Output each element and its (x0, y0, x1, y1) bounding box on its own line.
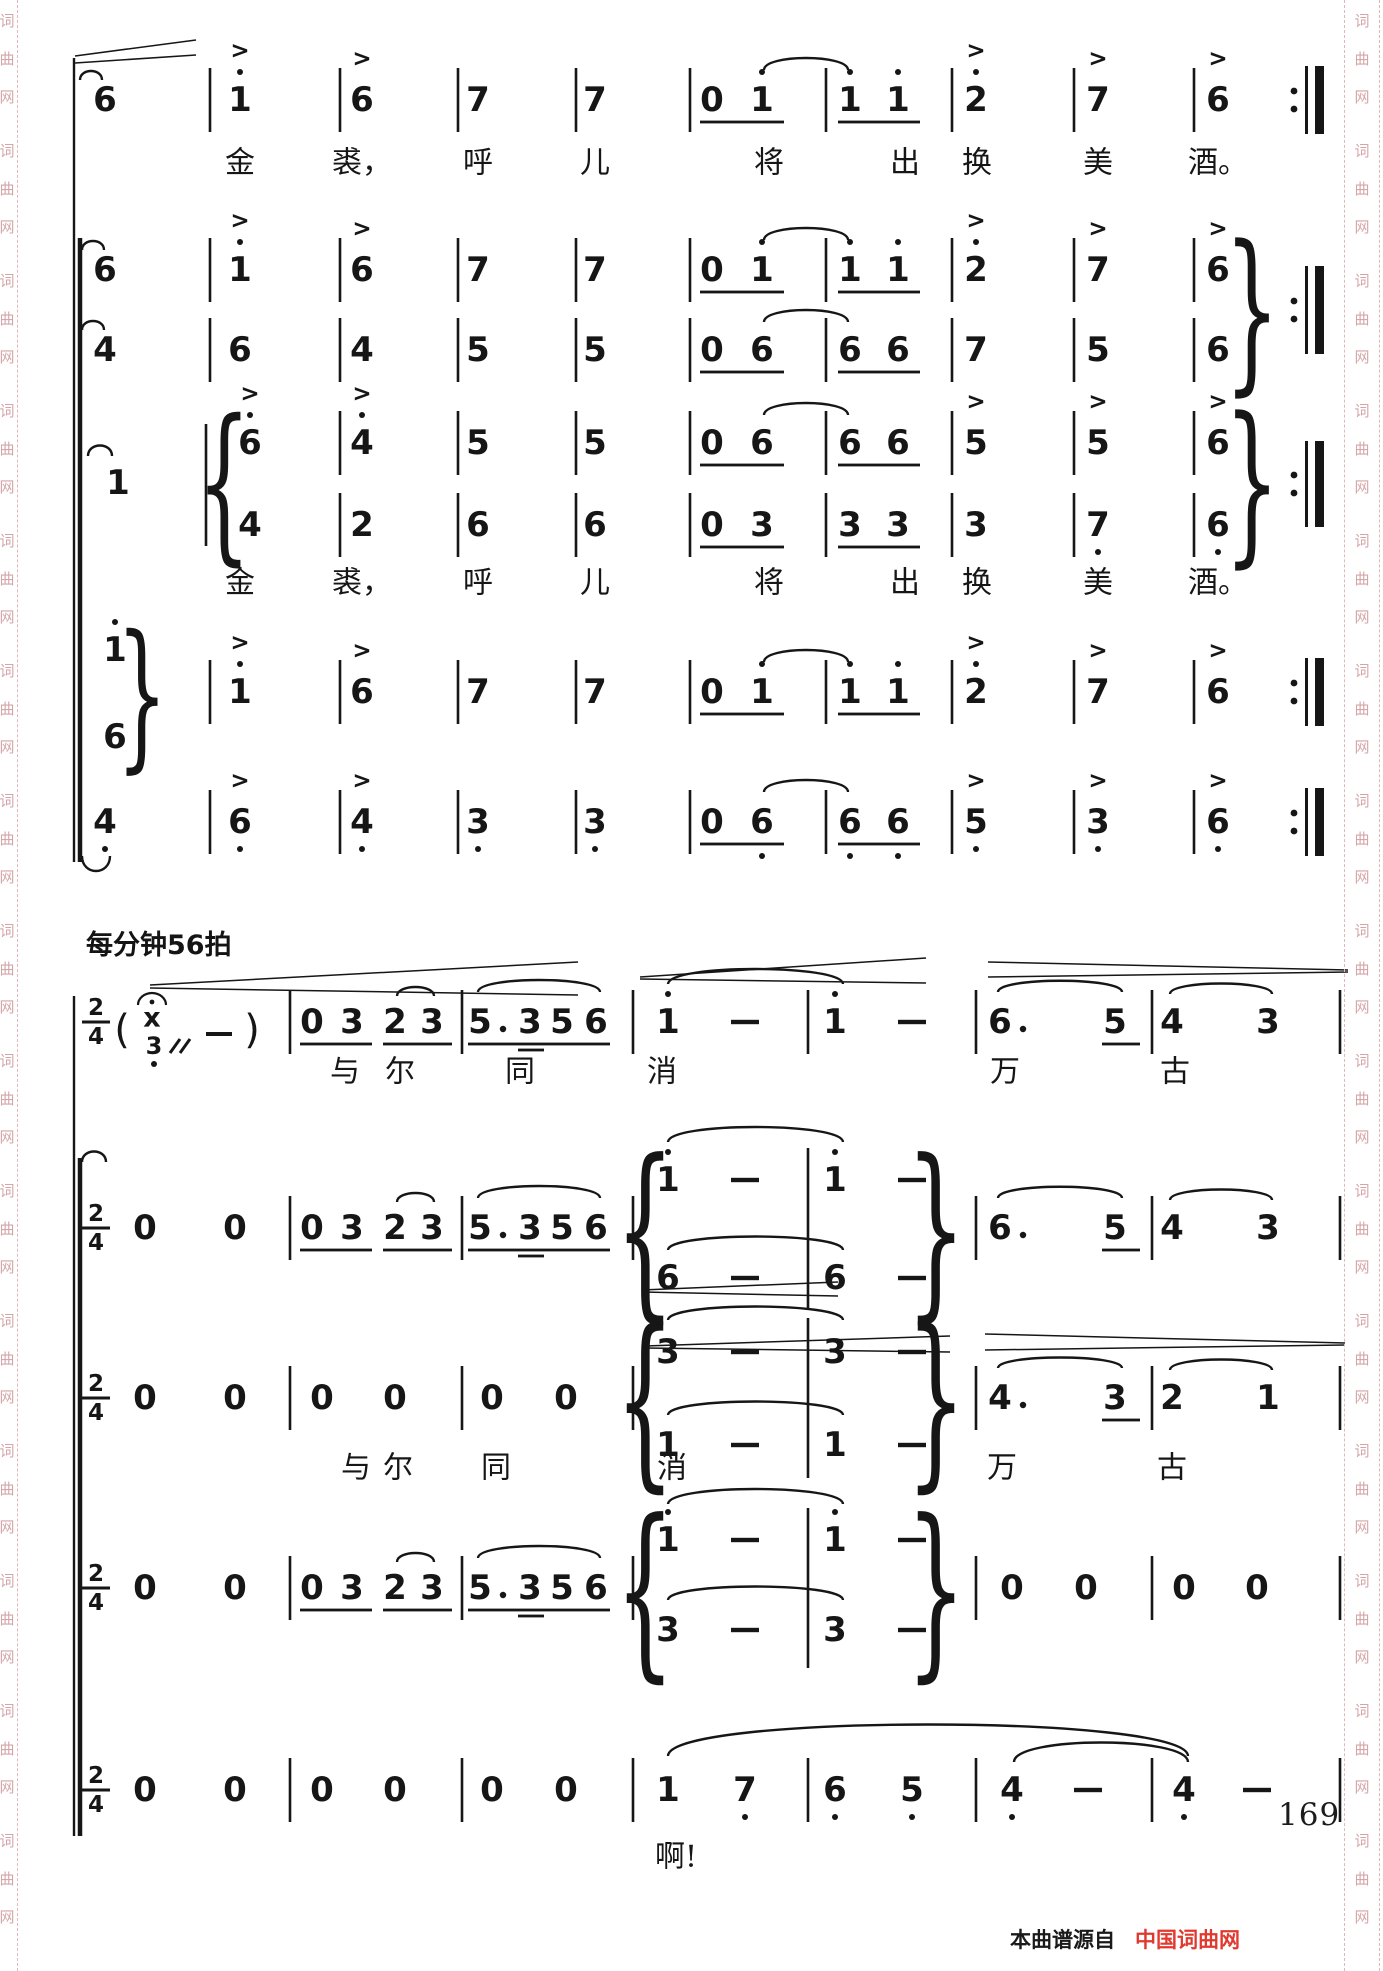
barline (575, 493, 578, 557)
duration-dash (731, 1276, 759, 1280)
repeat-dot (1291, 490, 1298, 497)
barline (1193, 68, 1196, 132)
note-digit: 0 (1172, 1568, 1196, 1608)
hairpin-line (75, 40, 196, 56)
note-digit: 0 (480, 1378, 504, 1418)
octave-dot-low (151, 1061, 157, 1067)
watermark-char: 曲 (0, 52, 17, 67)
note-digit: 4 (350, 802, 374, 842)
note-digit: 6 (350, 80, 374, 120)
barline (73, 996, 75, 1836)
note-digit: 3 (1256, 1208, 1280, 1248)
hairpin-line (988, 972, 1348, 977)
barline (807, 1758, 810, 1822)
note-digit: 0 (133, 1770, 157, 1810)
barline (1193, 318, 1196, 382)
augmentation-dot (500, 1232, 506, 1238)
lyric: 酒。 (1188, 146, 1248, 181)
lyric: 酒。 (1188, 566, 1248, 601)
beam-underline (838, 843, 920, 846)
lyric: 与 (341, 1451, 371, 1486)
note-digit: 0 (1074, 1568, 1098, 1608)
watermark-char: 曲 (1352, 702, 1372, 717)
beam-underline (468, 1249, 610, 1252)
barline (339, 493, 342, 557)
watermark-char: 网 (1352, 1520, 1372, 1535)
watermark-char: 曲 (1352, 1612, 1372, 1627)
lyric: 同 (505, 1055, 535, 1090)
note-digit: 6 (466, 505, 490, 545)
duration-dash (731, 1443, 759, 1447)
tie-slur (764, 403, 848, 415)
barline (1073, 660, 1076, 724)
note-digit: 1 (228, 80, 252, 120)
tremolo-slash (180, 1039, 190, 1053)
duration-dash (206, 1032, 232, 1036)
tie-slur (82, 321, 104, 330)
repeat-thick-bar (1315, 441, 1324, 527)
barline (807, 1508, 810, 1668)
note-digit: 5 (550, 1002, 574, 1042)
note-digit: 3 (340, 1002, 364, 1042)
note-digit: 6 (93, 80, 117, 120)
watermark-char: 词 (0, 1574, 17, 1589)
watermark-char: 词 (1352, 1314, 1372, 1329)
duration-dash (731, 1350, 759, 1354)
note-digit: 3 (518, 1568, 542, 1608)
note-digit: 6 (350, 672, 374, 712)
lyric: 将 (754, 146, 784, 181)
accent-mark: > (352, 381, 371, 407)
tie-slur (998, 981, 1122, 992)
tie-slur (668, 1489, 843, 1504)
hairpin-line (985, 1334, 1345, 1343)
time-sig-top: 2 (88, 1561, 104, 1587)
octave-dot-low (359, 846, 365, 852)
augmentation-dot (500, 1592, 506, 1598)
barline (339, 318, 342, 382)
note-digit: 5 (466, 423, 490, 463)
note-digit: 3 (823, 1332, 847, 1372)
octave-dot-high (832, 1149, 838, 1155)
beam-underline (518, 1049, 544, 1052)
note-digit: 7 (583, 672, 607, 712)
note-digit: 1 (823, 1425, 847, 1465)
beam-underline (300, 1609, 372, 1612)
repeat-thick-bar (1315, 658, 1324, 726)
lyric: 同 (481, 1451, 511, 1486)
lyric: 裘， (332, 566, 392, 601)
accent-mark: > (966, 768, 985, 794)
barline (1193, 411, 1196, 475)
note-digit: 6 (584, 1208, 608, 1248)
note-digit: 5 (1103, 1002, 1127, 1042)
watermark-dashed-line (1379, 0, 1380, 1971)
barline (1151, 1758, 1154, 1822)
voice-brace: } (1224, 380, 1280, 584)
beam-underline (1102, 1249, 1140, 1252)
repeat-thick-bar (1315, 788, 1324, 856)
note-digit: 1 (750, 250, 774, 290)
accent-mark: > (230, 208, 249, 234)
watermark-char: 曲 (1352, 1742, 1372, 1757)
lyric: 儿 (580, 146, 610, 181)
tie-slur (998, 1187, 1122, 1198)
barline (689, 660, 692, 724)
tie-slur (668, 1587, 843, 1601)
watermark-char: 曲 (1352, 1482, 1372, 1497)
note-digit: 6 (583, 505, 607, 545)
watermark-char: 词 (0, 534, 17, 549)
watermark-char: 曲 (0, 1222, 17, 1237)
time-sig-top: 2 (88, 995, 104, 1021)
tie-slur (80, 71, 102, 80)
barline (825, 68, 828, 132)
watermark-char: 网 (0, 1390, 17, 1405)
octave-dot-low (1215, 549, 1221, 555)
lyric: 古 (1157, 1451, 1187, 1486)
note-digit: 7 (583, 80, 607, 120)
barline (1073, 411, 1076, 475)
footer-source-label: 本曲谱源自 (1010, 1928, 1115, 1952)
note-digit: 6 (988, 1208, 1012, 1248)
barline (289, 1366, 292, 1430)
lyric: 消 (647, 1055, 677, 1090)
watermark-char: 曲 (1352, 1092, 1372, 1107)
repeat-thin-bar (1305, 66, 1308, 134)
barline (73, 58, 75, 862)
lyric: 出 (890, 146, 920, 181)
tie-slur (764, 228, 848, 240)
repeat-thin-bar (1305, 658, 1308, 726)
note-digit: 6 (750, 802, 774, 842)
watermark-char: 网 (0, 90, 17, 105)
watermark-char: 词 (0, 1184, 17, 1199)
note-digit: 5 (964, 423, 988, 463)
note-digit: 2 (964, 80, 988, 120)
watermark-char: 词 (0, 664, 17, 679)
note-digit: 6 (886, 802, 910, 842)
note-digit: 7 (1086, 505, 1110, 545)
barline (689, 411, 692, 475)
octave-dot-low (895, 853, 901, 859)
note-digit: 5 (468, 1002, 492, 1042)
note-digit: 5 (468, 1208, 492, 1248)
lyric: 古 (1160, 1055, 1190, 1090)
barline (339, 68, 342, 132)
watermark-char: 词 (1352, 1054, 1372, 1069)
note-digit: 0 (1000, 1568, 1024, 1608)
beam-underline (1102, 1043, 1140, 1046)
accent-mark: > (1208, 768, 1227, 794)
watermark-char: 词 (1352, 274, 1372, 289)
note-digit: 4 (1000, 1770, 1024, 1810)
octave-dot-low (102, 846, 108, 852)
lyric: 啊! (655, 1840, 697, 1875)
octave-dot-high (973, 661, 979, 667)
time-sig-top: 2 (88, 1371, 104, 1397)
watermark-char: 词 (1352, 794, 1372, 809)
note-digit: 2 (383, 1208, 407, 1248)
note-digit: 2 (383, 1568, 407, 1608)
tie-slur (764, 58, 848, 70)
lyric: 呼 (463, 146, 493, 181)
score-svg: 61>6>7701112>7>6>金裘，呼儿将出换美酒。61>6>7701112… (0, 0, 1383, 1971)
barline (825, 411, 828, 475)
watermark-char: 网 (0, 1780, 17, 1795)
note-digit: 7 (1086, 672, 1110, 712)
barline (209, 790, 212, 854)
note-digit: 5 (468, 1568, 492, 1608)
note-digit: 0 (310, 1770, 334, 1810)
repeat-thin-bar (1305, 788, 1308, 856)
watermark-char: 词 (0, 1444, 17, 1459)
voice-brace: } (906, 1290, 966, 1510)
watermark-char: 网 (0, 220, 17, 235)
watermark-char: 词 (0, 1834, 17, 1849)
barline (78, 1158, 83, 1836)
watermark-char: 网 (1352, 610, 1372, 625)
barline (1151, 1366, 1154, 1430)
duration-dash (731, 1178, 759, 1182)
barline (1339, 990, 1342, 1054)
watermark-char: 曲 (1352, 572, 1372, 587)
octave-dot-high (665, 1149, 671, 1155)
note-digit: 6 (750, 330, 774, 370)
note-digit: 1 (750, 80, 774, 120)
barline (1193, 660, 1196, 724)
lyric: 万 (987, 1451, 1017, 1486)
note-digit: 1 (823, 1002, 847, 1042)
note-digit: 5 (550, 1208, 574, 1248)
voice-brace: } (116, 600, 167, 787)
watermark-char: 词 (0, 14, 17, 29)
beam-underline (300, 1249, 372, 1252)
accent-mark: > (352, 216, 371, 242)
note-digit: 3 (518, 1002, 542, 1042)
watermark-char: 曲 (1352, 52, 1372, 67)
watermark-char: 网 (1352, 220, 1372, 235)
note-digit: 3 (420, 1002, 444, 1042)
note-digit: 0 (223, 1208, 247, 1248)
note-digit: 5 (583, 330, 607, 370)
note-digit: 1 (886, 250, 910, 290)
watermark-char: 词 (1352, 1444, 1372, 1459)
repeat-dot (1291, 88, 1298, 95)
barline (457, 493, 460, 557)
augmentation-dot (1020, 1402, 1026, 1408)
note-digit: 0 (700, 423, 724, 463)
note-digit: 6 (228, 802, 252, 842)
note-digit: 7 (466, 80, 490, 120)
barline (1073, 238, 1076, 302)
watermark-dashed-line (17, 0, 18, 1971)
watermark-char: 曲 (1352, 1352, 1372, 1367)
octave-dot-low (742, 1814, 748, 1820)
watermark-char: 网 (0, 350, 17, 365)
accent-mark: > (240, 381, 259, 407)
lyric: 金 (225, 146, 255, 181)
barline (457, 318, 460, 382)
barline (825, 318, 828, 382)
watermark-char: 曲 (0, 442, 17, 457)
lyric: 万 (990, 1055, 1020, 1090)
beam-underline (700, 121, 784, 124)
barline (575, 318, 578, 382)
accent-mark: > (352, 46, 371, 72)
lyric: 金 (225, 566, 255, 601)
tie-slur (478, 1186, 600, 1198)
barline (339, 790, 342, 854)
repeat-dot (1291, 680, 1298, 687)
tie-slur (1014, 1743, 1188, 1763)
note-digit: 1 (750, 672, 774, 712)
note-digit: 6 (584, 1002, 608, 1042)
octave-dot-high (973, 239, 979, 245)
watermark-char: 曲 (0, 1092, 17, 1107)
tie-slur (668, 1237, 843, 1251)
barline (825, 493, 828, 557)
note-digit: 0 (133, 1378, 157, 1418)
barline (975, 1758, 978, 1822)
barline (1339, 1196, 1342, 1260)
octave-dot-low (1181, 1814, 1187, 1820)
note-digit: 0 (700, 80, 724, 120)
watermark-char: 网 (0, 1910, 17, 1925)
watermark-char: 曲 (1352, 832, 1372, 847)
repeat-thin-bar (1305, 441, 1308, 527)
note-digit: 7 (733, 1770, 757, 1810)
note-digit: 4 (93, 330, 117, 370)
beam-underline (300, 1043, 372, 1046)
note-digit: 3 (838, 505, 862, 545)
time-sig-top: 2 (88, 1763, 104, 1789)
voice-brace: { (197, 383, 251, 582)
watermark-char: 曲 (1352, 182, 1372, 197)
note-digit: 1 (1256, 1378, 1280, 1418)
tie-slur (82, 1152, 106, 1163)
octave-dot-high (832, 1509, 838, 1515)
barline (689, 238, 692, 302)
beam-underline (700, 464, 784, 467)
note-digit: 3 (518, 1208, 542, 1248)
accent-mark: > (966, 389, 985, 415)
note-digit: 0 (383, 1378, 407, 1418)
barline (825, 790, 828, 854)
barline (975, 990, 978, 1054)
watermark-char: 网 (1352, 1650, 1372, 1665)
barline (461, 1366, 464, 1430)
octave-dot-low (909, 1814, 915, 1820)
barline (209, 318, 212, 382)
barline (951, 790, 954, 854)
octave-dot-high (665, 1509, 671, 1515)
tempo-marking: 每分钟56拍 (86, 923, 232, 962)
beam-underline (383, 1249, 452, 1252)
tie-slur (478, 980, 600, 992)
barline (632, 990, 635, 1054)
beam-underline (518, 1615, 544, 1618)
footer-site-link[interactable]: 中国词曲网 (1135, 1928, 1240, 1952)
repeat-dot (1291, 698, 1298, 705)
percussion-x-note: x (143, 1003, 160, 1034)
note-digit: 6 (838, 330, 862, 370)
lyric: 尔 (385, 1055, 415, 1090)
watermark-char: 网 (0, 1260, 17, 1275)
tie-slur (764, 310, 848, 322)
note-digit: 6 (886, 330, 910, 370)
barline (339, 660, 342, 724)
lyric: 将 (754, 566, 784, 601)
watermark-char: 曲 (0, 182, 17, 197)
barline (209, 238, 212, 302)
barline (461, 1758, 464, 1822)
note-digit: 7 (583, 250, 607, 290)
octave-dot-high (237, 661, 243, 667)
lyric: 呼 (463, 566, 493, 601)
barline (1073, 318, 1076, 382)
note-digit: 6 (838, 423, 862, 463)
note-digit: 0 (133, 1208, 157, 1248)
watermark-char: 词 (0, 404, 17, 419)
watermark-char: 网 (0, 1650, 17, 1665)
note-digit: 3 (1086, 802, 1110, 842)
beam-underline (838, 121, 920, 124)
tie-slur (82, 856, 110, 871)
accent-mark: > (1208, 46, 1227, 72)
barline (339, 411, 342, 475)
octave-dot-low (759, 853, 765, 859)
note-digit: 4 (1160, 1208, 1184, 1248)
note-digit: 0 (300, 1208, 324, 1248)
tie-slur (668, 1725, 1188, 1757)
note-digit: 6 (886, 423, 910, 463)
beam-underline (700, 713, 784, 716)
note-digit: 2 (383, 1002, 407, 1042)
repeat-dot (1291, 106, 1298, 113)
note-digit: 3 (1256, 1002, 1280, 1042)
barline (951, 411, 954, 475)
octave-dot-high (247, 412, 253, 418)
barline (1073, 493, 1076, 557)
note-digit: 3 (1103, 1378, 1127, 1418)
lyric: 换 (962, 566, 992, 601)
watermark-char: 曲 (0, 312, 17, 327)
tremolo-slash (170, 1039, 180, 1053)
note-digit: 1 (838, 80, 862, 120)
barline (1339, 1366, 1342, 1430)
barline (689, 790, 692, 854)
note-digit: 4 (93, 802, 117, 842)
barline (209, 68, 212, 132)
tie-slur (764, 650, 848, 662)
watermark-char: 曲 (0, 1872, 17, 1887)
watermark-char: 网 (1352, 1260, 1372, 1275)
barline (457, 411, 460, 475)
watermark-char: 词 (0, 1054, 17, 1069)
tie-slur (668, 1307, 843, 1321)
watermark-char: 词 (0, 274, 17, 289)
watermark-char: 网 (0, 870, 17, 885)
note-digit: 3 (420, 1208, 444, 1248)
note-digit: 0 (300, 1002, 324, 1042)
barline (78, 238, 83, 862)
tie-slur (668, 1127, 843, 1142)
barline (951, 68, 954, 132)
tie-slur (478, 1546, 600, 1558)
note-digit: 1 (228, 672, 252, 712)
beam-underline (700, 371, 784, 374)
